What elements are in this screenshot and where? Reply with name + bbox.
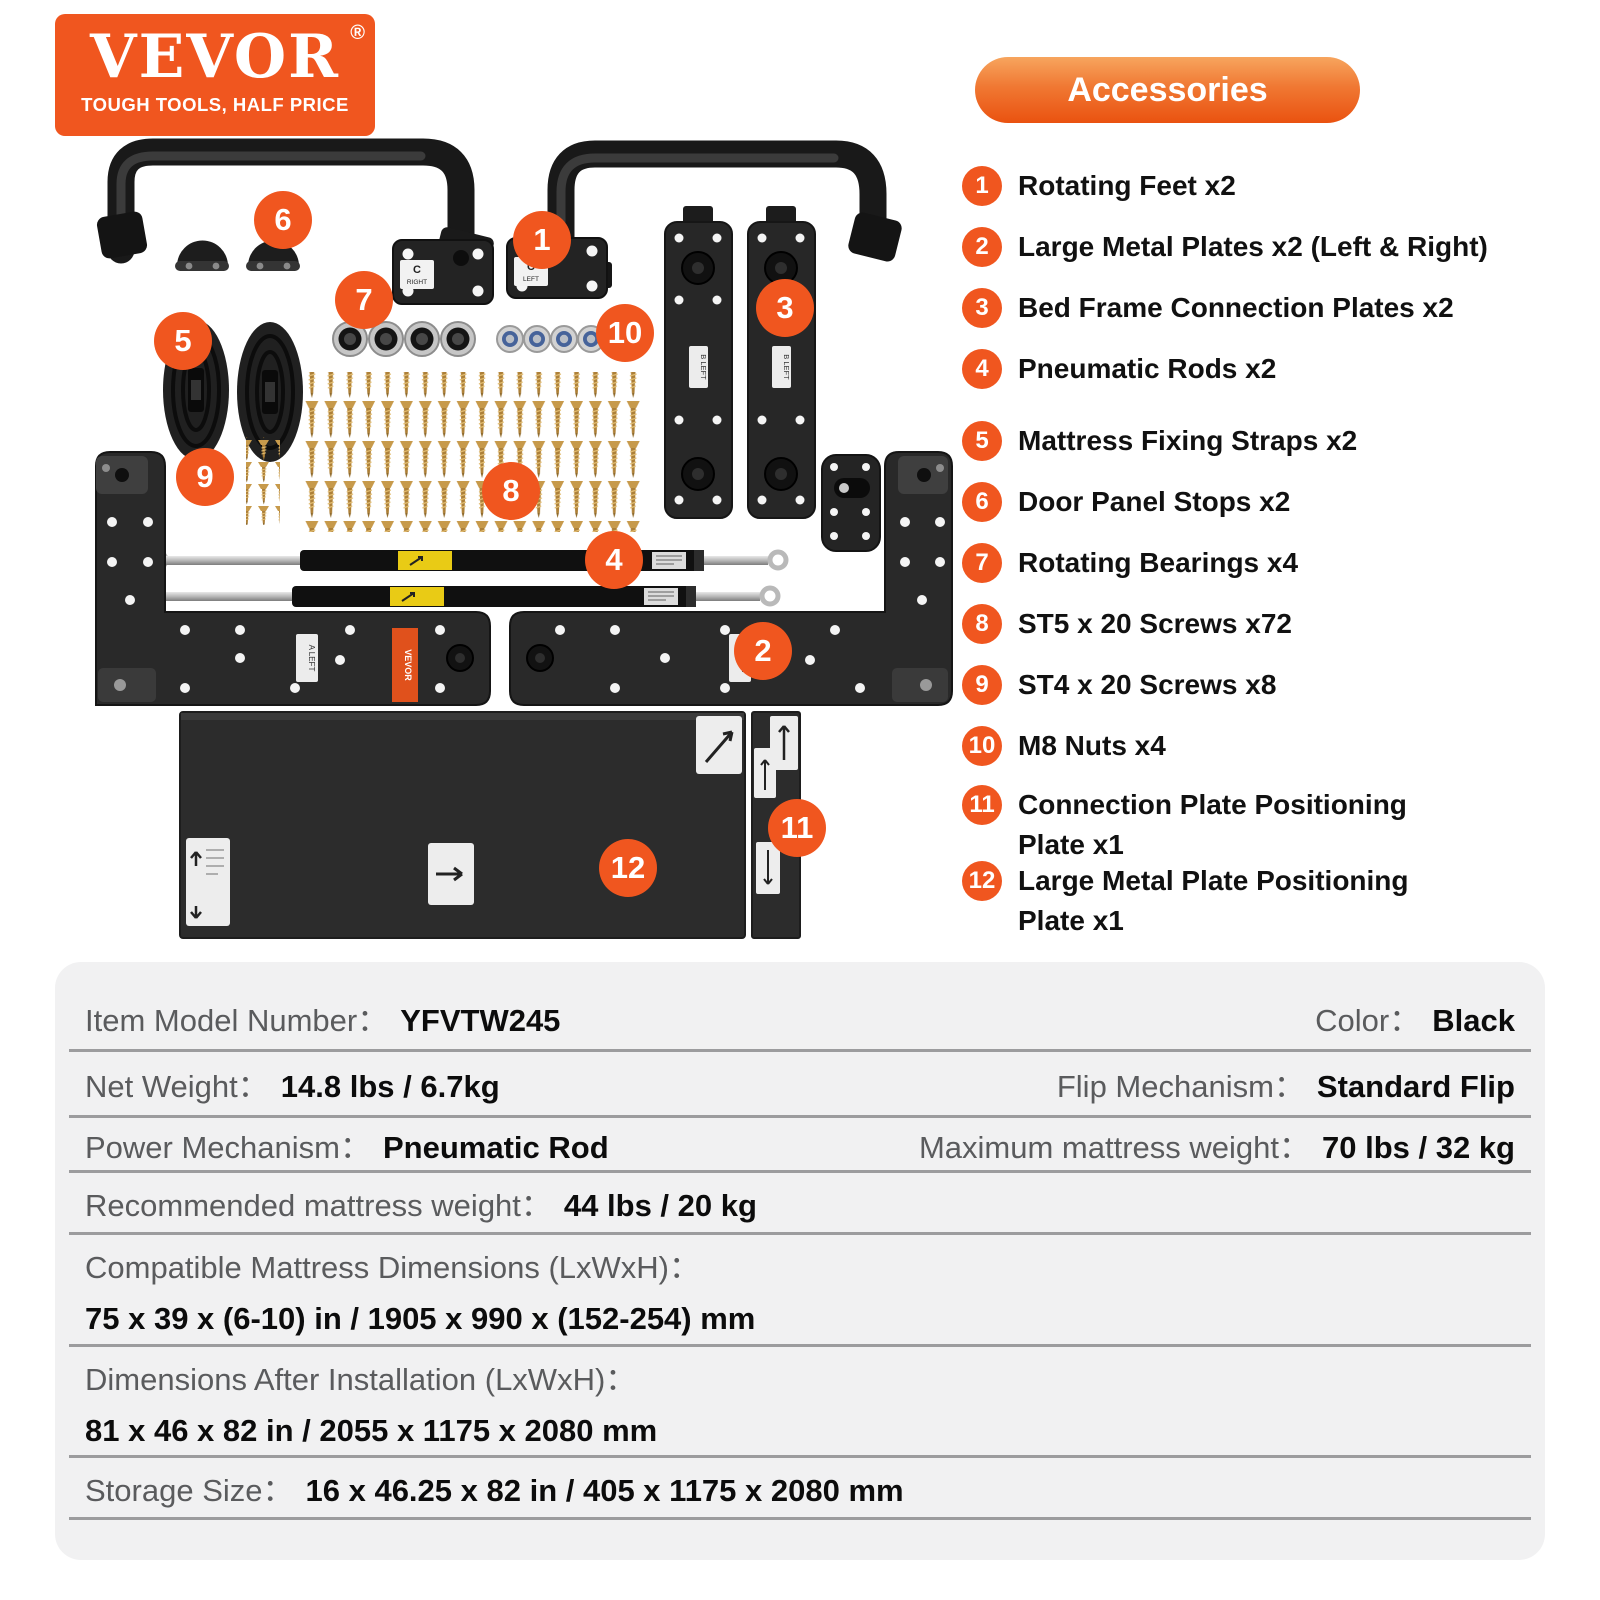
spec-mattress-dim-value: 75 x 39 x (6-10) in / 1905 x 990 x (152-… xyxy=(85,1301,755,1336)
spec-row-installed-dimensions: Dimensions After Installation (LxWxH)： 8… xyxy=(69,1347,1531,1458)
small-keyhole-plate xyxy=(822,455,880,551)
accessory-badge-4: 4 xyxy=(962,349,1002,389)
accessory-label-8: ST5 x 20 Screws x72 xyxy=(1018,604,1558,644)
accessory-label-10: M8 Nuts x4 xyxy=(1018,726,1558,766)
spec-table: Item Model Number：YFVTW245 Color：Black N… xyxy=(55,962,1545,1560)
spec-power-mechanism: Power Mechanism：Pneumatic Rod xyxy=(85,1122,609,1167)
spec-color: Color：Black xyxy=(1315,995,1515,1040)
accessory-badge-7: 7 xyxy=(962,543,1002,583)
b-plate-2: B LEFT xyxy=(748,206,815,518)
spec-power-value: Pneumatic Rod xyxy=(383,1130,609,1165)
accessory-label-7: Rotating Bearings x4 xyxy=(1018,543,1558,583)
spec-power-label: Power Mechanism： xyxy=(85,1130,371,1165)
marker-6: 6 xyxy=(254,191,312,249)
marker-10: 10 xyxy=(596,304,654,362)
st4-screws-grid xyxy=(246,437,280,525)
c-bracket-right: C RIGHT xyxy=(393,226,495,304)
accessory-item-9: 9ST4 x 20 Screws x8 xyxy=(962,665,1558,705)
accessory-label-3: Bed Frame Connection Plates x2 xyxy=(1018,288,1558,328)
accessory-label-1: Rotating Feet x2 xyxy=(1018,166,1558,206)
marker-12: 12 xyxy=(599,839,657,897)
accessory-item-12: 12Large Metal Plate Positioning Plate x1 xyxy=(962,861,1558,941)
accessory-item-7: 7Rotating Bearings x4 xyxy=(962,543,1558,583)
m8-nuts xyxy=(497,326,604,352)
accessory-label-5: Mattress Fixing Straps x2 xyxy=(1018,421,1558,461)
c-right-letter: C xyxy=(413,264,421,276)
marker-11: 11 xyxy=(768,799,826,857)
spec-max-weight-label: Maximum mattress weight： xyxy=(919,1130,1310,1165)
spec-installed-dim-value: 81 x 46 x 82 in / 2055 x 1175 x 2080 mm xyxy=(85,1413,657,1448)
c-left-word: LEFT xyxy=(523,276,539,283)
accessory-label-6: Door Panel Stops x2 xyxy=(1018,482,1558,522)
accessories-title: Accessories xyxy=(1067,71,1267,110)
marker-4: 4 xyxy=(585,531,643,589)
marker-8: 8 xyxy=(482,462,540,520)
accessory-label-2: Large Metal Plates x2 (Left & Right) xyxy=(1018,227,1558,267)
spec-row-power-maxweight: Power Mechanism：Pneumatic Rod Maximum ma… xyxy=(69,1118,1531,1173)
c-right-word: RIGHT xyxy=(407,279,427,286)
b-plate-2-label: B LEFT xyxy=(782,354,791,380)
marker-1: 1 xyxy=(513,211,571,269)
accessory-item-4: 4Pneumatic Rods x2 xyxy=(962,349,1558,389)
spec-color-label: Color： xyxy=(1315,1003,1420,1038)
marker-5: 5 xyxy=(154,312,212,370)
spec-model-value: YFVTW245 xyxy=(400,1003,560,1038)
spec-net-weight: Net Weight：14.8 lbs / 6.7kg xyxy=(85,1061,500,1106)
accessory-badge-11: 11 xyxy=(962,785,1002,825)
marker-7: 7 xyxy=(335,271,393,329)
accessory-item-11: 11Connection Plate Positioning Plate x1 xyxy=(962,785,1558,865)
accessory-item-2: 2Large Metal Plates x2 (Left & Right) xyxy=(962,227,1558,267)
accessory-badge-2: 2 xyxy=(962,227,1002,267)
accessory-badge-12: 12 xyxy=(962,861,1002,901)
spec-storage-size: Storage Size：16 x 46.25 x 82 in / 405 x … xyxy=(85,1465,904,1510)
accessory-badge-3: 3 xyxy=(962,288,1002,328)
spec-net-weight-value: 14.8 lbs / 6.7kg xyxy=(281,1069,500,1104)
accessory-badge-1: 1 xyxy=(962,166,1002,206)
accessory-label-12: Large Metal Plate Positioning Plate x1 xyxy=(1018,861,1558,941)
a-plate-left-label: A LEFT xyxy=(307,645,316,672)
spec-mattress-dim-label: Compatible Mattress Dimensions (LxWxH)： xyxy=(85,1250,700,1285)
pneumatic-rod-2 xyxy=(142,586,778,607)
spec-recommended-value: 44 lbs / 20 kg xyxy=(564,1188,757,1223)
accessory-badge-6: 6 xyxy=(962,482,1002,522)
spec-color-value: Black xyxy=(1432,1003,1515,1038)
spec-net-weight-label: Net Weight： xyxy=(85,1069,269,1104)
spec-max-mattress-weight: Maximum mattress weight：70 lbs / 32 kg xyxy=(919,1122,1515,1167)
spec-row-model-color: Item Model Number：YFVTW245 Color：Black xyxy=(69,986,1531,1052)
accessory-item-8: 8ST5 x 20 Screws x72 xyxy=(962,604,1558,644)
accessory-badge-5: 5 xyxy=(962,421,1002,461)
accessory-badge-8: 8 xyxy=(962,604,1002,644)
accessory-item-10: 10M8 Nuts x4 xyxy=(962,726,1558,766)
spec-recommended-label: Recommended mattress weight： xyxy=(85,1188,552,1223)
spec-flip-value: Standard Flip xyxy=(1317,1069,1515,1104)
accessory-label-4: Pneumatic Rods x2 xyxy=(1018,349,1558,389)
spec-flip-label: Flip Mechanism： xyxy=(1057,1069,1305,1104)
accessory-label-11: Connection Plate Positioning Plate x1 xyxy=(1018,785,1558,865)
spec-storage-value: 16 x 46.25 x 82 in / 405 x 1175 x 2080 m… xyxy=(306,1473,904,1508)
accessories-header: Accessories xyxy=(975,57,1360,123)
spec-model-label: Item Model Number： xyxy=(85,1003,388,1038)
accessory-badge-9: 9 xyxy=(962,665,1002,705)
accessory-label-9: ST4 x 20 Screws x8 xyxy=(1018,665,1558,705)
vevor-sticker-text: VEVOR xyxy=(403,649,413,681)
accessory-item-5: 5Mattress Fixing Straps x2 xyxy=(962,421,1558,461)
spec-max-weight-value: 70 lbs / 32 kg xyxy=(1322,1130,1515,1165)
spec-installed-dim-label: Dimensions After Installation (LxWxH)： xyxy=(85,1362,636,1397)
marker-2: 2 xyxy=(734,622,792,680)
accessory-item-6: 6Door Panel Stops x2 xyxy=(962,482,1558,522)
spec-storage-label: Storage Size： xyxy=(85,1473,294,1508)
pneumatic-rod-1 xyxy=(150,550,786,571)
st5-screws-grid xyxy=(303,372,643,532)
spec-flip-mechanism: Flip Mechanism：Standard Flip xyxy=(1057,1061,1515,1106)
accessory-badge-10: 10 xyxy=(962,726,1002,766)
spec-model: Item Model Number：YFVTW245 xyxy=(85,995,560,1040)
b-plate-1: B LEFT xyxy=(665,206,732,518)
marker-3: 3 xyxy=(756,279,814,337)
accessory-item-1: 1Rotating Feet x2 xyxy=(962,166,1558,206)
spec-recommended-weight: Recommended mattress weight：44 lbs / 20 … xyxy=(85,1180,757,1225)
positioning-panel-large xyxy=(180,712,745,938)
spec-row-weight-flip: Net Weight：14.8 lbs / 6.7kg Flip Mechani… xyxy=(69,1052,1531,1118)
spec-row-storage-size: Storage Size：16 x 46.25 x 82 in / 405 x … xyxy=(69,1458,1531,1520)
spec-row-mattress-dimensions: Compatible Mattress Dimensions (LxWxH)： … xyxy=(69,1235,1531,1347)
b-plate-1-label: B LEFT xyxy=(699,354,708,380)
accessory-item-3: 3Bed Frame Connection Plates x2 xyxy=(962,288,1558,328)
spec-row-recommended-weight: Recommended mattress weight：44 lbs / 20 … xyxy=(69,1173,1531,1235)
marker-9: 9 xyxy=(176,448,234,506)
